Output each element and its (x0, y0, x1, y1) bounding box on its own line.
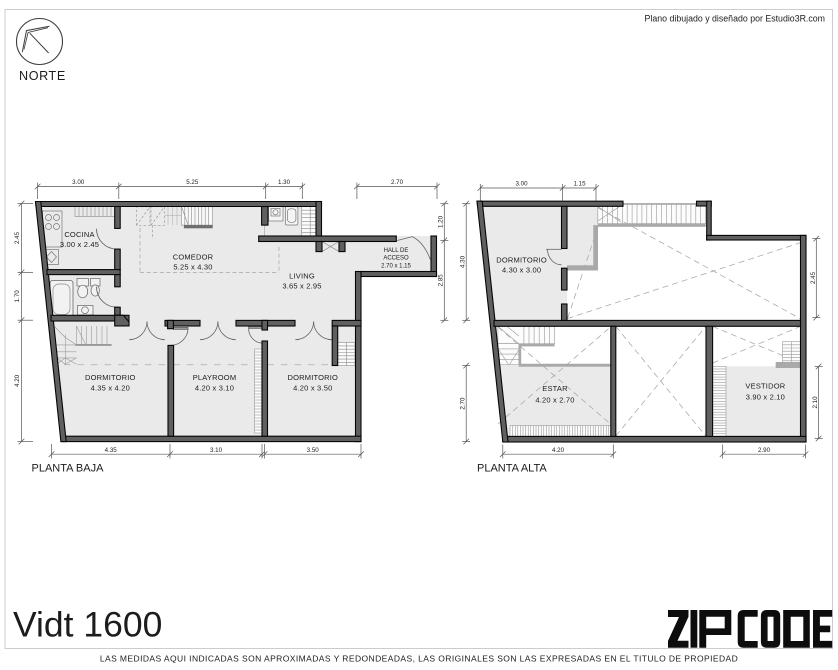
svg-text:2.70: 2.70 (460, 397, 467, 410)
svg-text:5.25 x 4.30: 5.25 x 4.30 (173, 263, 212, 272)
svg-text:2.90: 2.90 (758, 447, 771, 454)
svg-text:DORMITORIO: DORMITORIO (496, 256, 547, 265)
svg-text:4.20: 4.20 (14, 374, 21, 387)
svg-text:3.90 x 2.10: 3.90 x 2.10 (746, 393, 785, 402)
svg-text:2.10: 2.10 (812, 396, 819, 409)
svg-text:Vidt 1600: Vidt 1600 (13, 605, 162, 645)
svg-text:4.30: 4.30 (460, 255, 467, 268)
svg-text:4.30 x 3.00: 4.30 x 3.00 (502, 266, 541, 275)
svg-text:3.50: 3.50 (307, 447, 320, 454)
svg-text:2.70: 2.70 (391, 179, 404, 186)
svg-text:ESTAR: ESTAR (542, 384, 568, 393)
svg-text:3.00 x 2.45: 3.00 x 2.45 (60, 240, 99, 249)
svg-text:3.00: 3.00 (72, 179, 85, 186)
svg-text:2.70 x 1.15: 2.70 x 1.15 (381, 263, 411, 269)
svg-text:3.00: 3.00 (515, 181, 528, 188)
svg-text:ACCESO: ACCESO (383, 256, 409, 262)
svg-text:2.85: 2.85 (438, 274, 445, 287)
svg-text:1.15: 1.15 (573, 181, 586, 188)
svg-text:4.35 x 4.20: 4.35 x 4.20 (91, 383, 130, 392)
svg-text:1.30: 1.30 (278, 179, 291, 186)
svg-text:COMEDOR: COMEDOR (173, 252, 214, 261)
svg-text:2.45: 2.45 (14, 231, 21, 244)
svg-text:4.20: 4.20 (552, 447, 565, 454)
svg-text:5.25: 5.25 (186, 179, 199, 186)
svg-text:2.45: 2.45 (810, 271, 817, 284)
svg-text:4.35: 4.35 (105, 447, 118, 454)
svg-text:DORMITORIO: DORMITORIO (287, 373, 338, 382)
svg-text:PLAYROOM: PLAYROOM (193, 373, 237, 382)
svg-text:3.65 x 2.95: 3.65 x 2.95 (282, 282, 321, 291)
svg-text:LIVING: LIVING (289, 271, 315, 280)
svg-text:4.20 x 3.10: 4.20 x 3.10 (195, 383, 234, 392)
svg-text:NORTE: NORTE (19, 69, 66, 83)
svg-text:DORMITORIO: DORMITORIO (85, 373, 136, 382)
svg-text:Plano dibujado y diseñado por: Plano dibujado y diseñado por Estudio3R.… (645, 14, 825, 24)
svg-text:1.70: 1.70 (14, 290, 21, 303)
svg-text:COCINA: COCINA (64, 230, 94, 239)
svg-text:1.20: 1.20 (438, 215, 445, 228)
svg-text:3.10: 3.10 (210, 447, 223, 454)
svg-text:VESTIDOR: VESTIDOR (745, 381, 785, 390)
svg-text:4.20 x 2.70: 4.20 x 2.70 (535, 396, 574, 405)
svg-text:LAS MEDIDAS AQUI INDICADAS SON: LAS MEDIDAS AQUI INDICADAS SON APROXIMAD… (100, 654, 738, 664)
svg-text:HALL DE: HALL DE (384, 248, 409, 254)
svg-text:4.20 x 3.50: 4.20 x 3.50 (293, 383, 332, 392)
svg-text:PLANTA BAJA: PLANTA BAJA (32, 463, 105, 475)
svg-text:PLANTA ALTA: PLANTA ALTA (477, 463, 547, 475)
